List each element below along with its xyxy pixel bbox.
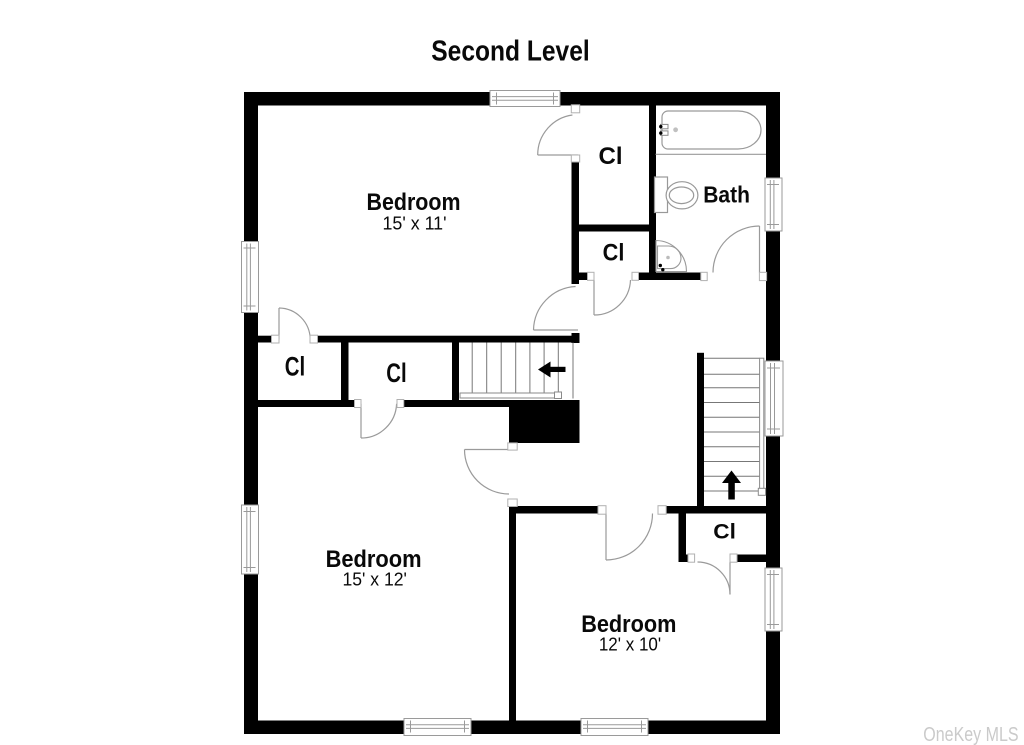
- svg-text:Cl: Cl: [386, 358, 406, 388]
- svg-text:Cl: Cl: [603, 239, 625, 266]
- svg-text:Cl: Cl: [599, 143, 623, 170]
- svg-text:Cl: Cl: [713, 519, 736, 543]
- svg-text:Cl: Cl: [285, 352, 305, 382]
- svg-text:15' x 12': 15' x 12': [343, 568, 407, 589]
- svg-text:12' x 10': 12' x 10': [599, 634, 661, 655]
- svg-text:OneKey MLS: OneKey MLS: [923, 724, 1018, 745]
- svg-text:Second Level: Second Level: [431, 35, 589, 67]
- svg-text:15' x 11': 15' x 11': [383, 213, 447, 234]
- svg-text:Bath: Bath: [703, 181, 750, 207]
